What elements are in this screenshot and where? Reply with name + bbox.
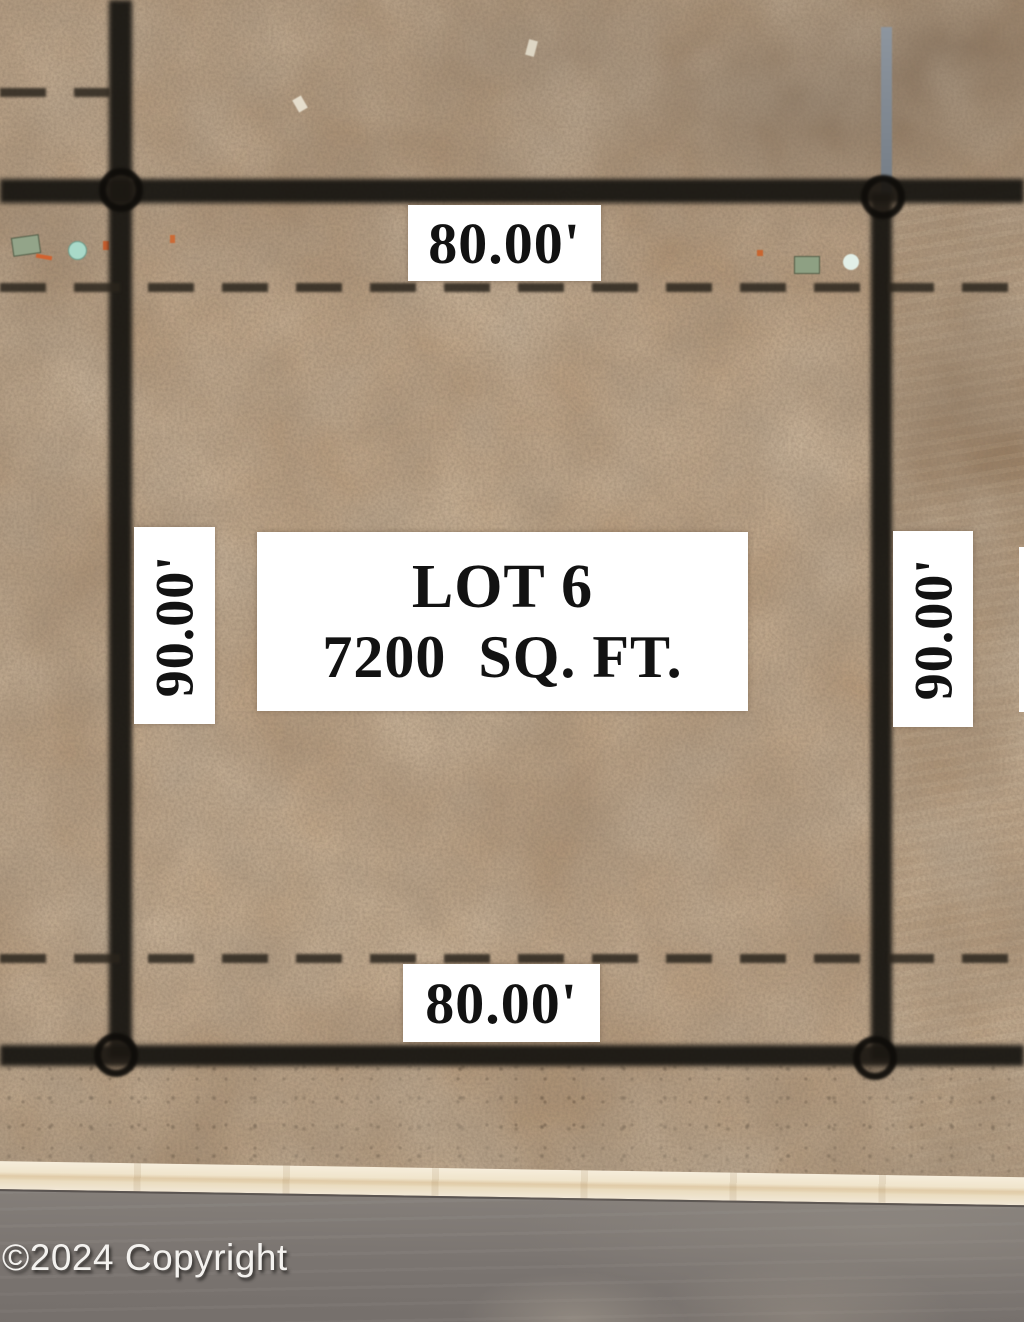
dimension-label-left: 90.00' bbox=[134, 527, 215, 724]
dimension-value: 80.00' bbox=[428, 210, 581, 277]
survey-monument-marker bbox=[99, 168, 143, 212]
ground-debris bbox=[757, 250, 763, 256]
lot-area-label: LOT 6 7200 SQ. FT. bbox=[257, 532, 748, 711]
gray-marker-line bbox=[881, 27, 892, 195]
ground-debris bbox=[794, 256, 820, 274]
aerial-lot-photo: 80.00' 80.00' 90.00' 90.00' LOT 6 7200 S… bbox=[0, 0, 1024, 1322]
survey-monument-marker bbox=[94, 1033, 138, 1077]
copyright-watermark: ©2024 Copyright bbox=[2, 1238, 288, 1279]
dimension-label-bottom: 80.00' bbox=[403, 964, 600, 1042]
setback-line-adjacent bbox=[0, 88, 110, 97]
ground-debris bbox=[170, 235, 175, 243]
dimension-value: 90.00' bbox=[144, 554, 206, 697]
dimension-value: 90.00' bbox=[902, 558, 964, 701]
ground-debris bbox=[843, 254, 859, 270]
dimension-label-top: 80.00' bbox=[408, 205, 601, 281]
setback-line-rear bbox=[0, 954, 1024, 963]
survey-monument-marker bbox=[861, 175, 905, 219]
adjacent-lot-label-edge bbox=[1019, 547, 1024, 712]
setback-line-front bbox=[0, 283, 1024, 292]
dimension-label-right: 90.00' bbox=[893, 531, 973, 727]
survey-monument-marker bbox=[853, 1036, 897, 1080]
lot-area: 7200 SQ. FT. bbox=[322, 624, 682, 690]
dimension-value: 80.00' bbox=[425, 970, 578, 1037]
lot-boundary-line-right bbox=[871, 193, 892, 1060]
ground-debris bbox=[68, 241, 87, 260]
lot-name: LOT 6 bbox=[412, 553, 593, 621]
lot-boundary-line-left bbox=[109, 0, 132, 1058]
